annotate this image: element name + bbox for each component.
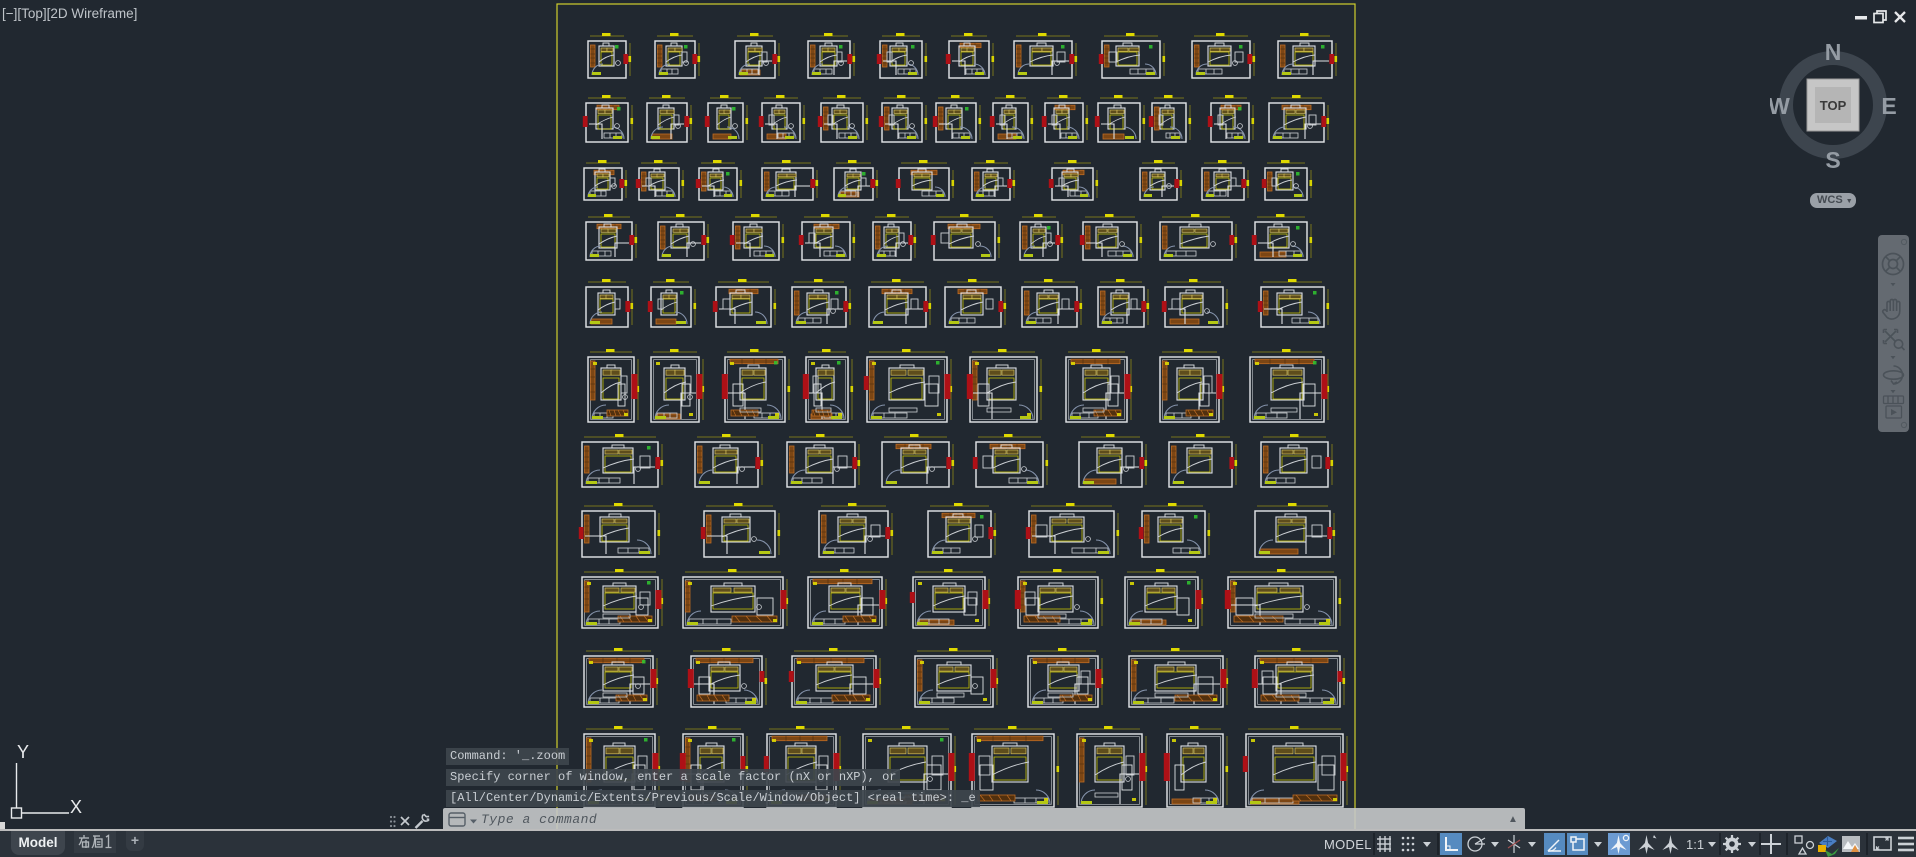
svg-text:S: S (1825, 147, 1840, 173)
svg-text:MODEL: MODEL (1324, 837, 1372, 852)
svg-text:E: E (1881, 93, 1896, 119)
svg-text:1:1: 1:1 (1686, 837, 1704, 852)
svg-text:X: X (70, 797, 82, 817)
svg-text:Y: Y (17, 742, 29, 762)
svg-text:N: N (1825, 40, 1842, 65)
svg-text:W: W (1770, 93, 1790, 119)
svg-text:TOP: TOP (1820, 98, 1847, 113)
